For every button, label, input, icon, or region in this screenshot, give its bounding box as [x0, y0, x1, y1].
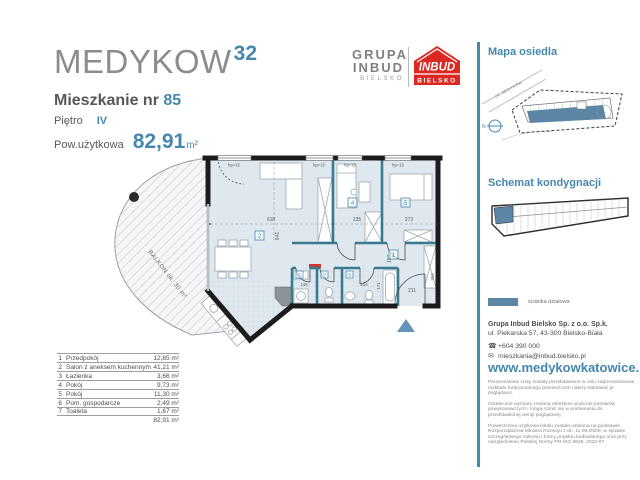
inbud-house-icon: INBUD BIELSKO [413, 45, 461, 87]
inbud-bielsko-logo: INBUD BIELSKO [413, 45, 461, 92]
floor-row: PiętroIV [54, 115, 107, 127]
phone-number: +604 390 000 [498, 342, 540, 352]
apartment-number: 85 [163, 92, 181, 109]
site-map: UL. MEDYKÓW N [482, 60, 636, 157]
project-number: 32 [234, 42, 257, 65]
company-address: ul. Piekarska 57, 43-300 Bielsko-Biała [488, 329, 608, 338]
balcony-column [129, 192, 139, 202]
window-sill-label: hp=15 [392, 163, 404, 168]
table-row: 4Pokój9,73 m² [57, 380, 179, 389]
window-sill-label: hp=15 [228, 163, 240, 168]
table-row: 6Pom. gospodarcze2,49 m² [57, 398, 179, 407]
window-sill-label: hp=15 [344, 163, 356, 168]
room-no: 2 [57, 364, 66, 371]
total-area: 82,91 m² [57, 417, 179, 424]
inbud-logo-subtext: BIELSKO [417, 78, 456, 85]
disclaimer-paragraph: Powierzchnia użytkowa lokalu została ust… [488, 424, 636, 446]
project-logo: MEDYKOW32 [54, 42, 257, 81]
room-no: 4 [57, 382, 66, 389]
dim-bath-width: 214 [360, 282, 368, 287]
apartment-label: Mieszkanie nr [54, 92, 159, 109]
grupa-logo-line2: INBUD [352, 61, 404, 74]
legend: ścianka działowa [488, 298, 570, 306]
street-label: UL. MEDYKÓW [494, 80, 523, 99]
room-no: 1 [57, 355, 66, 362]
table-row: 3Łazienka3,66 m² [57, 371, 179, 380]
inbud-logo-text: INBUD [419, 62, 455, 74]
room-label-6: 6 [298, 273, 301, 278]
dim-salon-width: 618 [267, 217, 276, 223]
room-label-3: 3 [348, 273, 351, 278]
grupa-inbud-logo: GRUPA INBUD BIELSKO [352, 48, 404, 82]
apartment-sheet: MEDYKOW32 Mieszkanie nr 85 PiętroIV Pow.… [0, 0, 640, 480]
dim-bath-height: 171 [376, 282, 381, 290]
disclaimer-block: Prezentowane rzuty zostały przedstawione… [488, 380, 636, 451]
schematic-title: Schemat kondygnacji [488, 177, 601, 189]
disclaimer-paragraph: Prezentowane rzuty zostały przedstawione… [488, 380, 636, 397]
floor-plan: BALKON ok. 30 m² [88, 146, 463, 365]
dining-table [215, 240, 251, 278]
room-no: 5 [57, 391, 66, 398]
phone-row: ☎ +604 390 000 [488, 342, 586, 352]
toilet [365, 290, 373, 304]
legend-label: ścianka działowa [528, 299, 570, 305]
sidebar-rule [477, 42, 480, 467]
dim-hall-right-height: 306 [430, 273, 435, 281]
room-no: 3 [57, 373, 66, 380]
compass-icon: N [482, 120, 503, 132]
dim-salon-height: 641 [275, 232, 281, 241]
map-title: Mapa osiedla [488, 46, 557, 58]
floor-label: Piętro [54, 115, 83, 127]
room-area: 3,66 m² [157, 373, 179, 380]
room-no: 7 [57, 408, 66, 415]
wardrobe [365, 212, 382, 242]
wardrobe [404, 230, 432, 242]
project-name: MEDYKOW [54, 43, 232, 80]
bathtub [383, 270, 397, 304]
room-no: 6 [57, 400, 66, 407]
room-name: Łazienka [66, 373, 157, 380]
contact-block: ☎ +604 390 000 ✉ mieszkania@inbud.bielsk… [488, 342, 586, 361]
wardrobe [318, 178, 332, 242]
room-label-7: 7 [323, 273, 326, 278]
room-area: 9,73 m² [157, 382, 179, 389]
phone-icon: ☎ [488, 342, 498, 352]
table-row: 5Pokój11,30 m² [57, 389, 179, 398]
grupa-logo-line3: BIELSKO [352, 76, 404, 82]
window-sill-label: hp=15 [313, 163, 325, 168]
room-name: Pom. gospodarcze [66, 400, 157, 407]
wardrobe [424, 246, 436, 288]
highlighted-unit [494, 206, 513, 224]
dim-entry-width: 211 [408, 288, 416, 294]
toilet [325, 287, 333, 302]
table-row: 7Toaleta1,67 m² [57, 407, 179, 416]
room-area: 2,49 m² [157, 400, 179, 407]
washbasin [345, 292, 355, 300]
bed [390, 174, 432, 200]
room-name: Pokój [66, 391, 154, 398]
entrance-marker-icon [397, 319, 415, 332]
room-name: Toaleta [66, 408, 157, 415]
apartment-title: Mieszkanie nr 85 [54, 92, 181, 110]
table-total-row: 82,91 m² [57, 416, 179, 425]
company-block: Grupa Inbud Bielsko Sp. z o.o. Sp.k. ul.… [488, 320, 608, 338]
floor-value: IV [97, 115, 107, 127]
compass-label: N [482, 124, 486, 130]
dim-room5-width: 273 [405, 217, 414, 223]
room-name: Pokój [66, 382, 157, 389]
floor-schematic [482, 192, 636, 251]
washing-machine [294, 289, 308, 303]
website-link[interactable]: www.medykowkatowice.pl [488, 360, 640, 375]
room-area: 11,30 m² [154, 391, 179, 398]
dim-room6-width: 146 [300, 282, 308, 287]
room-area: 1,67 m² [157, 408, 179, 415]
disclaimer-paragraph: Ostateczne wymiary zostaną określone pod… [488, 402, 636, 419]
dim-room4-width: 235 [353, 217, 362, 223]
partition-wall-swatch [488, 298, 518, 306]
logo-divider [408, 47, 409, 87]
company-name: Grupa Inbud Bielsko Sp. z o.o. Sp.k. [488, 320, 608, 329]
